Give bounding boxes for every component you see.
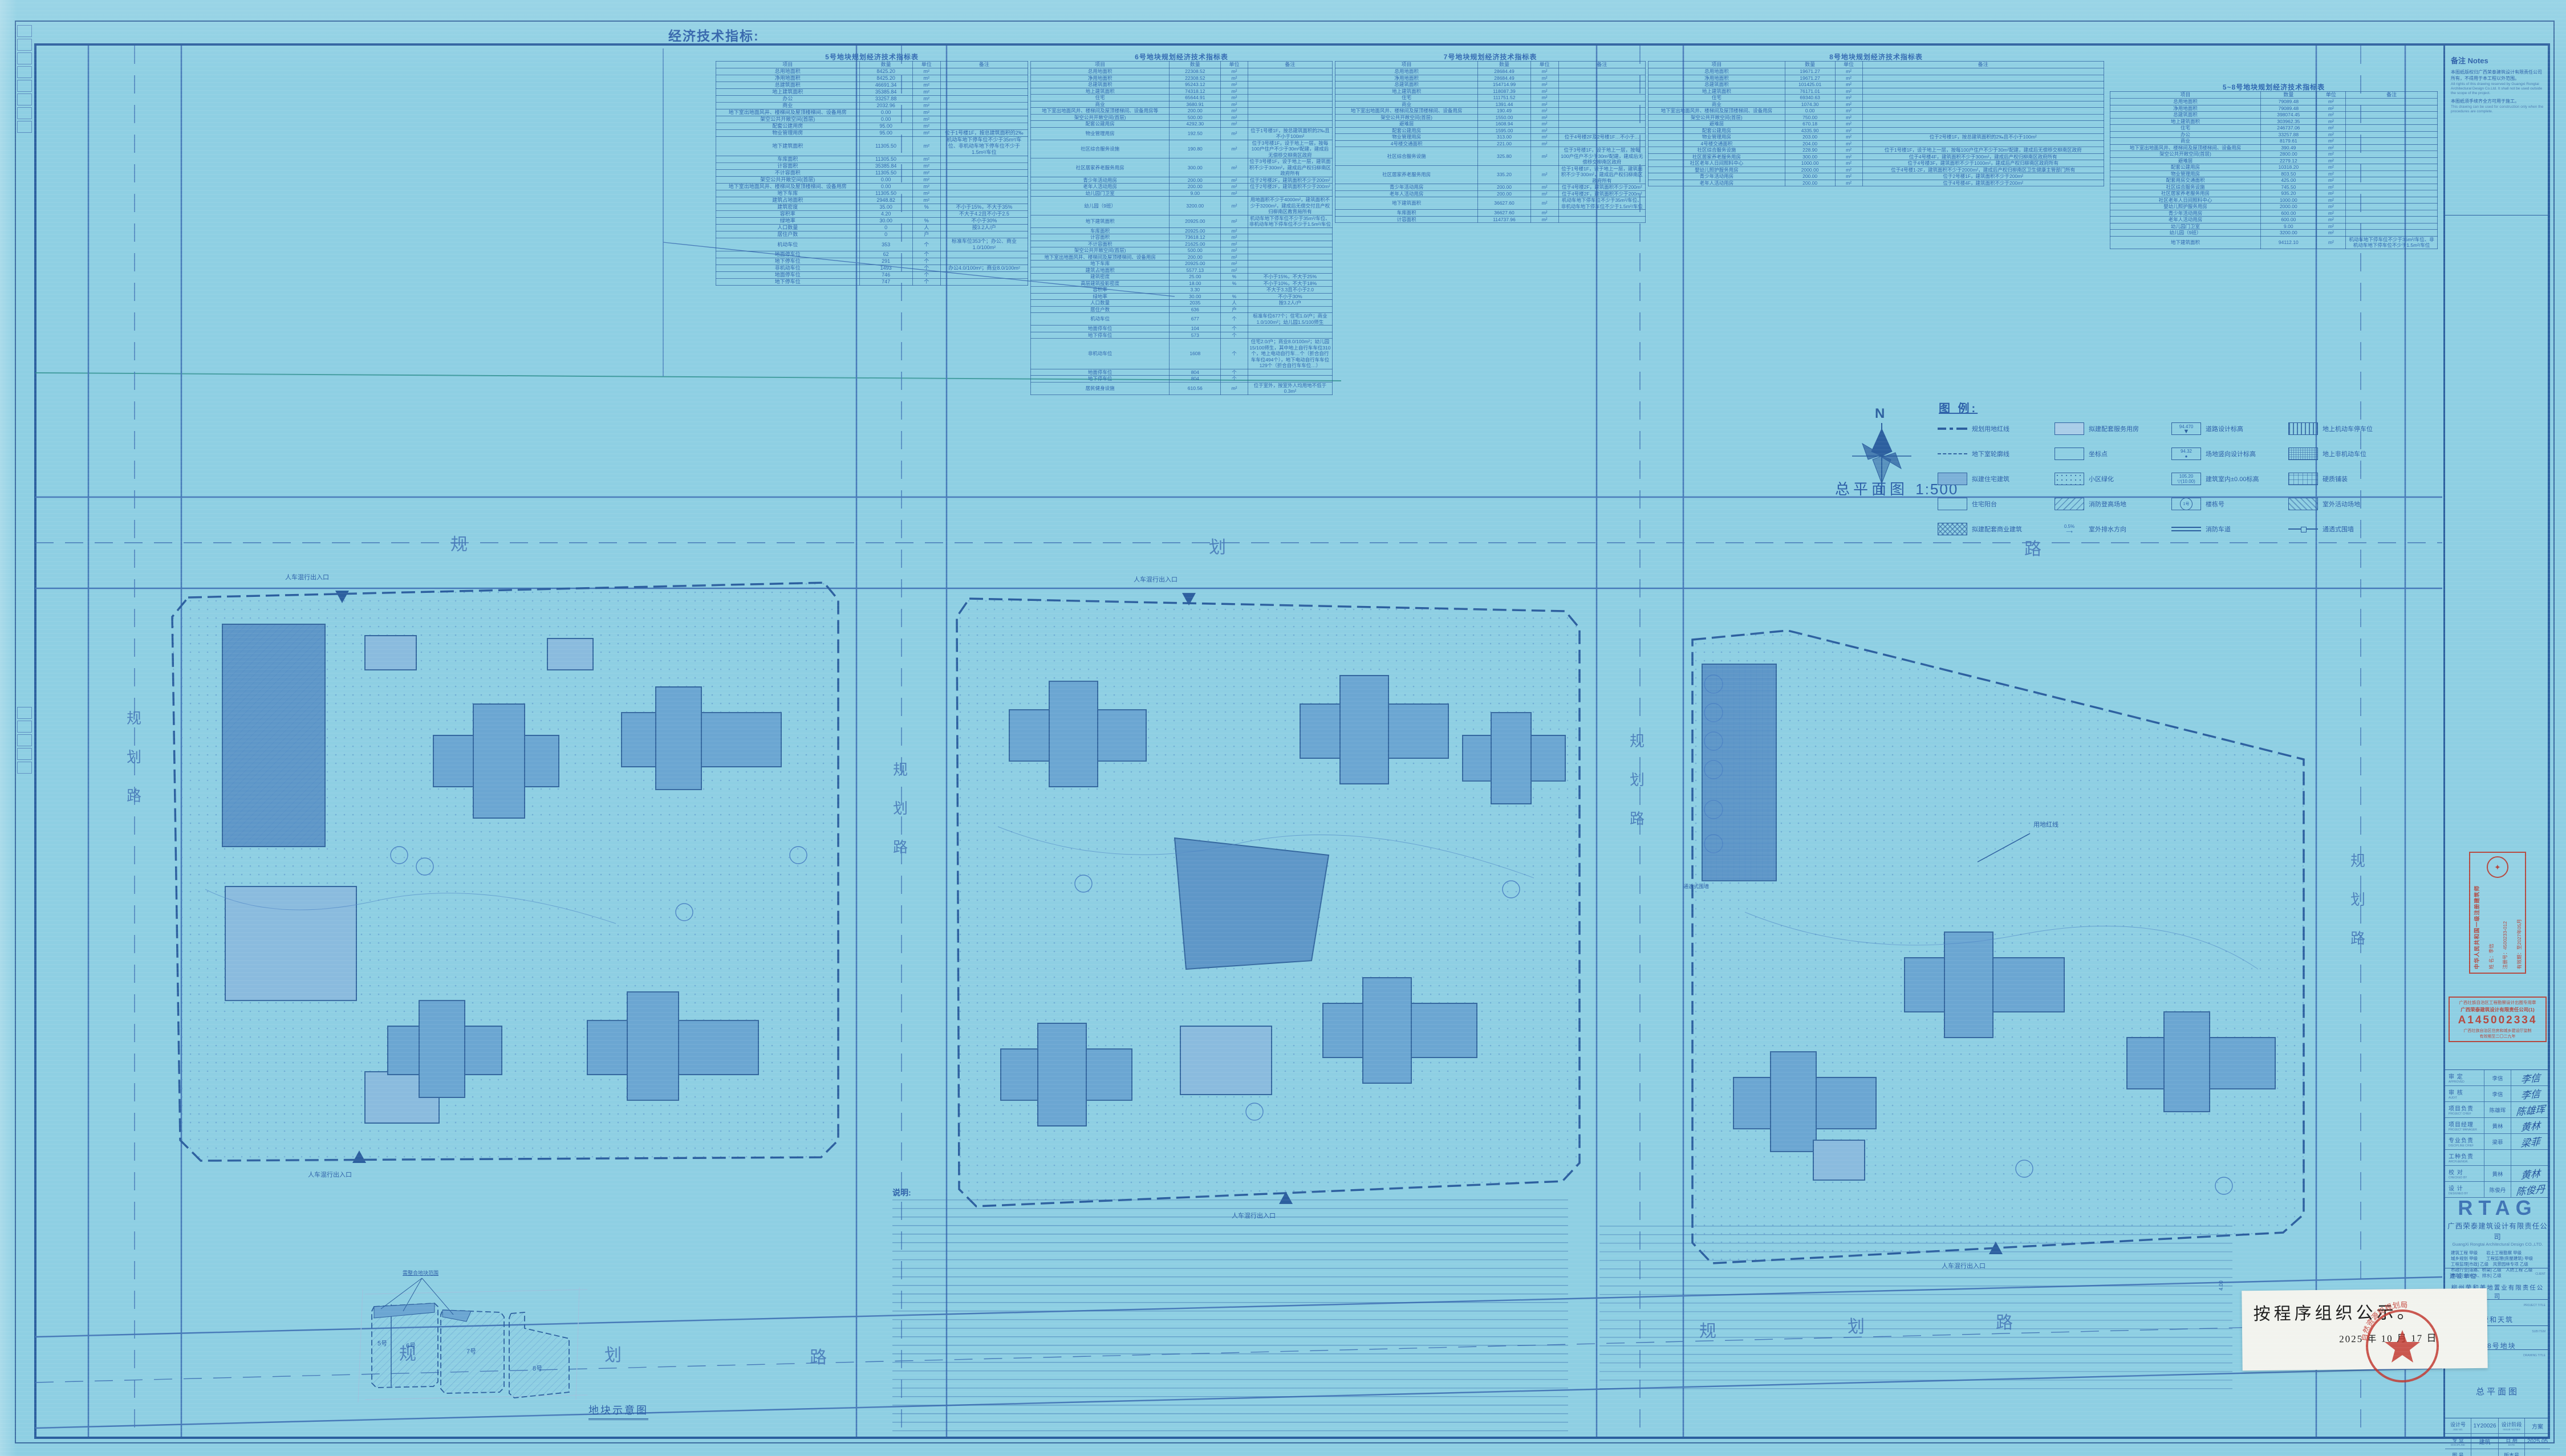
table-row: 地下建筑面积36627.60m²机动车地下停车位不少于35m²/车位、非机动车地… bbox=[1335, 197, 1646, 210]
table-row: 地下建筑面积11305.50m²机动车地下停车位不少于35m²/车位、非机动车地… bbox=[716, 137, 1028, 156]
table-row: 净用地面积79089.48m² bbox=[2110, 105, 2438, 112]
table-row: 架空公共开敞空间(首层)750.00m² bbox=[1649, 114, 2104, 121]
signature-row: 工种负责ARCH.&ENGR. bbox=[2445, 1150, 2550, 1166]
table-header: 备注 bbox=[940, 62, 1028, 68]
note-1-cn: 本图纸版权归广西荣泰建筑设计有限责任公司所有，不得用于本工程以外范围。 bbox=[2451, 69, 2544, 82]
table-header: 项目 bbox=[1649, 62, 1785, 68]
table-row: 地下建筑面积94112.10m²机动车地下停车位不少于35m²/车位、非机动车地… bbox=[2110, 236, 2438, 249]
legend-item: 地下室轮廓线 bbox=[1938, 442, 2055, 465]
fence-icon bbox=[2288, 528, 2318, 530]
table-row: 车库面积11305.50m² bbox=[716, 156, 1028, 163]
legend-item: 规划用地红线 bbox=[1938, 417, 2055, 440]
schematic-plot5-label: 5号 bbox=[377, 1339, 387, 1348]
table-header: 单位 bbox=[1530, 62, 1558, 68]
table-row: 机动车位353个标准车位353个；办公、商业1.0/100m² bbox=[716, 238, 1028, 251]
signature-row: 项目经理PROJECT MANAGER 黄林 黄林 bbox=[2445, 1118, 2550, 1134]
table-row: 架空公共开敞空间(首层)500.00m² bbox=[1031, 247, 1333, 254]
table-row: 办公33257.88m² bbox=[2110, 131, 2438, 138]
company-name-cn: 广西荣泰建筑设计有限责任公司 bbox=[2445, 1220, 2550, 1242]
seal-number: A145002334 bbox=[2451, 1014, 2544, 1027]
table-row: 架空公共开敞空间(首层)0.00m² bbox=[716, 116, 1028, 123]
legend-item: 1号楼栋号 bbox=[2171, 493, 2288, 515]
schematic-plot8-label: 8号 bbox=[533, 1364, 542, 1373]
road-label-top-3: 路 bbox=[2024, 535, 2041, 560]
signature-row: 专业负责DISCIPLINE CHIEF 梁菲 梁菲 bbox=[2445, 1134, 2550, 1150]
legend-item: 94.32●场地竖向设计标高 bbox=[2171, 442, 2288, 465]
seal-line2: 广西荣泰建筑设计有限责任公司(1) bbox=[2451, 1006, 2544, 1013]
coord-icon bbox=[2055, 448, 2084, 460]
table-header: 备注 bbox=[1558, 62, 1645, 68]
table-row: 高层建筑投影密度18.00%不小于10%，不大于18% bbox=[1031, 280, 1333, 287]
table-row: 绿地率30.00%不小于30% bbox=[716, 218, 1028, 225]
table-row: 地上建筑面积35385.84m² bbox=[716, 89, 1028, 96]
arch-stamp-emblem: ✦ bbox=[2487, 856, 2508, 878]
signer-name: 黄林 bbox=[2484, 1166, 2511, 1181]
signature-table: 审 定APPROVED 李信 李信审 核AUDIT 李信 李信项目负责PROJE… bbox=[2445, 1069, 2550, 1198]
legend-item: 地上非机动车位 bbox=[2288, 442, 2405, 465]
table-row: 老年人活动用房200.00m²位于4号楼2F，建筑面积不少于200m² bbox=[1335, 190, 1646, 197]
table-row: 青少年活动用房600.00m² bbox=[2110, 210, 2438, 217]
table-title: 6号地块规划经济技术指标表 bbox=[1030, 54, 1333, 61]
table-row: 容积率4.20不大于4.2且不小于2.5 bbox=[716, 211, 1028, 218]
table-row: 居住户数636户 bbox=[1031, 306, 1333, 313]
table-row: 非机动车位1493个办公4.0/100m²；商业8.0/100m² bbox=[716, 265, 1028, 272]
table-row: 地下停车位291个 bbox=[716, 258, 1028, 265]
table-row: 地下车库20925.00m² bbox=[1031, 261, 1333, 267]
table-row: 总用地面积19671.27m² bbox=[1649, 68, 2104, 75]
table-row: 避难层1608.94m² bbox=[1335, 121, 1646, 128]
legend-item: 105.20▽(10.00)建筑室内±0.00标高 bbox=[2171, 467, 2288, 490]
legend-label: 室外排水方向 bbox=[2089, 524, 2126, 534]
parking-icon bbox=[2288, 422, 2318, 435]
table-row: 架空公共开敞空间(首层)500.00m² bbox=[1031, 114, 1333, 121]
legend-item: 地上机动车停车位 bbox=[2288, 417, 2405, 440]
notes-heading: 说明: bbox=[892, 1187, 911, 1198]
table-row: 不计容面积21625.00m² bbox=[1031, 241, 1333, 247]
table-row: 架空公共开敞空间(首层)2800.00m² bbox=[2110, 151, 2438, 158]
table-row: 架空公共开敞空间(首层)0.00m² bbox=[716, 177, 1028, 184]
redline-icon bbox=[1938, 428, 1967, 430]
table-row: 物业管理用房203.00m²位于2号楼1F，按总建筑面积的2‰且不小于100m² bbox=[1649, 134, 2104, 141]
legend-item: 消防登高场地 bbox=[2055, 493, 2171, 515]
legend-item: 消防车道 bbox=[2171, 518, 2288, 540]
table-row: 4号楼交通面积204.00m² bbox=[1649, 140, 2104, 147]
legend-label: 室外活动场地 bbox=[2323, 499, 2360, 509]
table-header: 单位 bbox=[1221, 62, 1248, 68]
resid-icon bbox=[1938, 473, 1967, 485]
legend-label: 建筑室内±0.00标高 bbox=[2206, 474, 2259, 483]
table-row: 计容面积114737.96m² bbox=[1335, 216, 1646, 223]
seal-line1: 广西壮族自治区工程勘察设计出图专用章 bbox=[2451, 999, 2544, 1006]
table-row: 老年人活动用房200.00m²位于4号楼4F，建筑面积不少于200m² bbox=[1649, 180, 2104, 186]
table-header: 数量 bbox=[1785, 62, 1835, 68]
arch-stamp-name: 李信 bbox=[2488, 943, 2494, 953]
table-row: 地下室出地面风井、楼梯间及屋顶楼梯间、设备用房390.49m² bbox=[2110, 144, 2438, 151]
legend-label: 地下室轮廓线 bbox=[1972, 449, 2009, 458]
table-header: 备注 bbox=[1862, 62, 2104, 68]
legend-item: 拟建住宅建筑 bbox=[1938, 467, 2055, 490]
table-header: 项目 bbox=[1031, 62, 1170, 68]
schematic-title: 地块示意图 bbox=[588, 1402, 648, 1420]
table-header: 项目 bbox=[2110, 92, 2261, 99]
legend-label: 坐标点 bbox=[2089, 449, 2108, 458]
company-block: RTAG 广西荣泰建筑设计有限责任公司 GuangXi Rongtai Arch… bbox=[2445, 1196, 2550, 1279]
table-row: 非机动车位1608个住宅2.0/户；商业8.0/100m²；幼儿园15/100师… bbox=[1031, 339, 1333, 369]
legend-label: 拟建配套服务用房 bbox=[2089, 424, 2139, 433]
table-row: 总建筑面积154714.99m² bbox=[1335, 82, 1646, 88]
north-letter: N bbox=[1875, 406, 1885, 422]
econ-table-plot8: 8号地块规划经济技术指标表项目数量单位备注总用地面积19671.27m²净用地面… bbox=[1648, 54, 2104, 186]
table-row: 建筑密度35.00%不小于15%，不大于35% bbox=[716, 204, 1028, 211]
signer-name: 陈雄珲 bbox=[2484, 1102, 2511, 1117]
table-row: 商业1074.30m² bbox=[1649, 101, 2104, 108]
signer-name: 陈俊丹 bbox=[2484, 1182, 2511, 1197]
table-row: 居住户数0户 bbox=[716, 231, 1028, 238]
plot-8-boundary bbox=[1692, 631, 2304, 1263]
legend-item: 小区绿化 bbox=[2055, 467, 2171, 490]
arch-stamp-title: 中华人民共和国一级注册建筑师 bbox=[2472, 881, 2480, 969]
legend-label: 楼栋号 bbox=[2206, 499, 2224, 509]
signer-name: 李信 bbox=[2484, 1086, 2511, 1101]
econ-table-plot5: 5号地块规划经济技术指标表项目数量单位备注总用地面积8425.20m²净用地面积… bbox=[716, 54, 1028, 286]
table-header: 数量 bbox=[1478, 62, 1530, 68]
signature-row: 审 核AUDIT 李信 李信 bbox=[2445, 1086, 2550, 1102]
seal-line5: 有效期至二〇二九年 bbox=[2451, 1034, 2544, 1039]
table-header: 单位 bbox=[2316, 92, 2346, 99]
entrance-label-5: 人车混行出入口 bbox=[1134, 575, 1178, 584]
table-row: 居民健身设施610.56m²位于室外，按室外人均用地不低于0.3m² bbox=[1031, 382, 1333, 394]
drawing-sheet: 经济技术指标: 5号地块规划经济技术指标表项目数量单位备注总用地面积8425.2… bbox=[0, 0, 2566, 1456]
legend-item: 住宅阳台 bbox=[1938, 493, 2055, 515]
table-row: 人口数量2035人按3.2人/户 bbox=[1031, 300, 1333, 307]
table-row: 总建筑面积95243.12m² bbox=[1031, 82, 1333, 88]
balcony-icon bbox=[1938, 498, 1967, 510]
table-row: 净用地面积19671.27m² bbox=[1649, 75, 2104, 82]
entrance-label-2: 人车混行出入口 bbox=[308, 1170, 352, 1179]
company-name-en: GuangXi Rongtai Architectural Design CO.… bbox=[2445, 1242, 2550, 1247]
table-header: 单位 bbox=[912, 62, 940, 68]
seal-line4: 广西壮族自治区住房和城乡建设厅监制 bbox=[2451, 1028, 2544, 1034]
ver-no bbox=[2525, 1449, 2550, 1456]
legend-item: 室外活动场地 bbox=[2288, 493, 2405, 515]
signer-name bbox=[2484, 1150, 2511, 1165]
table-row: 地上建筑面积74318.12m² bbox=[1031, 88, 1333, 95]
table-row: 车库面积36627.60m² bbox=[1335, 210, 1646, 217]
siteelev-icon: 94.32● bbox=[2171, 448, 2201, 460]
schematic-plot6-label: 6号 bbox=[406, 1341, 416, 1350]
table-row: 绿地率30.00%不小于30% bbox=[1031, 293, 1333, 300]
table-row: 老年人活动用房600.00m² bbox=[2110, 217, 2438, 223]
road-label-top-2: 划 bbox=[1209, 533, 1226, 558]
note-2-en: This drawing can be used for constructio… bbox=[2451, 105, 2544, 114]
legend-label: 住宅阳台 bbox=[1972, 499, 1997, 509]
road-label-mid2: 规 划 路 bbox=[1630, 730, 1645, 828]
table-row: 地面停车位804个 bbox=[1031, 369, 1333, 376]
legend-label: 地上非机动车位 bbox=[2323, 449, 2366, 458]
legend-item: 94.470▼道路设计标高 bbox=[2171, 417, 2288, 440]
table-row: 社区居家养老服务用房935.20m² bbox=[2110, 190, 2438, 197]
legend-item: 0.5%⟶室外排水方向 bbox=[2055, 518, 2171, 540]
roadelev-icon: 94.470▼ bbox=[2171, 422, 2201, 435]
legend-label: 地上机动车停车位 bbox=[2323, 424, 2373, 433]
legend-label: 拟建配套商业建筑 bbox=[1972, 524, 2022, 534]
table-row: 社区综合服务设施190.80m²位于3号楼1F，设于地上一层，按每100户住户不… bbox=[1031, 140, 1333, 158]
table-row: 幼儿园（9班）3200.00m² bbox=[2110, 230, 2438, 237]
table-row: 老年人活动用房200.00m²位于2号楼2F，建筑面积不少于200m² bbox=[1031, 184, 1333, 190]
table-row: 商业8179.61m² bbox=[2110, 138, 2438, 145]
table-row: 地下室出地面风井、楼梯间及屋顶楼梯间、设备用房0.00m² bbox=[716, 184, 1028, 190]
note-1-en: All rights of this drawing reserved by G… bbox=[2451, 82, 2544, 96]
table-row: 地面停车位62个 bbox=[716, 251, 1028, 258]
table-row: 住宅246737.06m² bbox=[2110, 125, 2438, 132]
table-row: 不计容面积11305.50m² bbox=[716, 170, 1028, 177]
drawing-name: 总平面图 bbox=[2450, 1385, 2545, 1397]
table-row: 地下室出地面风井、楼梯间及屋顶楼梯间、设备用房190.49m² bbox=[1335, 108, 1646, 115]
table-row: 容积率3.30不大于3.3且不小于2.0 bbox=[1031, 287, 1333, 294]
table-row: 地上建筑面积303962.35m² bbox=[2110, 118, 2438, 125]
notes-title: 备注 Notes bbox=[2451, 55, 2544, 66]
legend-label: 消防车道 bbox=[2206, 524, 2231, 534]
table-row: 计容面积73618.12m² bbox=[1031, 234, 1333, 241]
legend-label: 硬质铺装 bbox=[2323, 474, 2348, 483]
table-row: 计容面积35385.84m² bbox=[716, 163, 1028, 170]
plan-title-text: 总平面图 bbox=[1835, 481, 1908, 498]
note-2-cn: 本图纸须手续齐全方可用于施工。 bbox=[2451, 98, 2544, 104]
table-row: 机动车位677个标准车位677个；住宅1.0/户；商业1.0/100m²；幼儿园… bbox=[1031, 313, 1333, 326]
legend-item: 硬质铺装 bbox=[2288, 467, 2405, 490]
table-row: 物业管理用房95.00m²位于1号楼1F，按总建筑面积的2‰ bbox=[716, 130, 1028, 137]
qualification-line: 城乡规划 甲级 工程监理(房屋建筑) 甲级 bbox=[2451, 1256, 2544, 1262]
table-row: 幼儿园门卫室9.00m² bbox=[1031, 190, 1333, 197]
bldgno-icon: 1号 bbox=[2171, 498, 2201, 510]
table-row: 4号楼交通面积221.00m² bbox=[1335, 140, 1646, 147]
title-block: 备注 Notes 本图纸版权归广西荣泰建筑设计有限责任公司所有，不得用于本工程以… bbox=[2443, 43, 2550, 1439]
table-row: 婴幼儿照护服务用房2000.00m²位于4号楼1-2F，建筑面积不少于2000m… bbox=[1649, 166, 2104, 173]
signer-name: 李信 bbox=[2484, 1070, 2511, 1085]
table-row: 车库面积20925.00m² bbox=[1031, 227, 1333, 234]
signature-row: 审 定APPROVED 李信 李信 bbox=[2445, 1070, 2550, 1086]
table-row: 配套公建用房4292.30m² bbox=[1031, 121, 1333, 128]
road-label-bottom-3: 路 bbox=[810, 1343, 827, 1368]
table-header: 单位 bbox=[1835, 62, 1862, 68]
date: 2025.05 bbox=[2525, 1434, 2550, 1449]
table-row: 物业管理用房803.50m² bbox=[2110, 170, 2438, 177]
table-row: 地上建筑面积118087.39m² bbox=[1335, 88, 1646, 95]
signature-row: 设 计DESIGNED BY 陈俊丹 陈俊丹 bbox=[2445, 1182, 2550, 1198]
table-row: 住宅111751.52m² bbox=[1335, 95, 1646, 101]
table-row: 幼儿园门卫室9.00m² bbox=[2110, 223, 2438, 230]
table-row: 青少年活动用房200.00m²位于2号楼2F，建筑面积不少于200m² bbox=[1031, 177, 1333, 184]
table-row: 住宅65644.91m² bbox=[1031, 95, 1333, 101]
table-row: 社区综合服务设施228.90m²位于1号楼1F，设于地上一层，按每100户住户不… bbox=[1649, 147, 2104, 154]
road-label-top-1: 规 bbox=[450, 530, 468, 555]
table-row: 物业管理用房192.50m²位于1号楼1F，按总建筑面积的2‰且不小于100m² bbox=[1031, 127, 1333, 140]
company-logo: RTAG bbox=[2445, 1196, 2550, 1220]
schematic-callout: 需整合地块范围 bbox=[403, 1269, 439, 1276]
fire-icon bbox=[2055, 498, 2084, 510]
table-title: 7号地块规划经济技术指标表 bbox=[1335, 54, 1646, 61]
table-row: 幼儿园（9班）3200.00m²用地面积不少于4000m²，建筑面积不少于320… bbox=[1031, 197, 1333, 215]
titleblock-notes: 备注 Notes 本图纸版权归广西荣泰建筑设计有限责任公司所有，不得用于本工程以… bbox=[2445, 50, 2550, 215]
table-row: 地下室出地面风井、楼梯间及屋顶楼梯间、设备用房200.00m² bbox=[1031, 254, 1333, 261]
table-row: 社区老年人日间照料中心1000.00m²位于4号楼3F，建筑面积不少于1000m… bbox=[1649, 160, 2104, 167]
table-row: 地下室出地面风井、楼梯间及屋顶楼梯间、设备用房0.00m² bbox=[1649, 108, 2104, 115]
table-row: 建筑占地面积5577.13m² bbox=[1031, 267, 1333, 274]
job-rows: 设计号JOB NO. 1Y20026 设计阶段ISSUE NOTES 方案 专 … bbox=[2445, 1418, 2550, 1456]
table-row: 配套公建用房4335.90m² bbox=[1649, 127, 2104, 134]
table-row: 总建筑面积46691.34m² bbox=[716, 82, 1028, 89]
legend-label: 拟建住宅建筑 bbox=[1972, 474, 2009, 483]
table-row: 婴幼儿照护服务用房2000.00m² bbox=[2110, 204, 2438, 210]
table-row: 总用地面积28684.49m² bbox=[1335, 68, 1646, 75]
green-icon bbox=[2055, 473, 2084, 485]
bldgelev-icon: 105.20▽(10.00) bbox=[2171, 473, 2201, 485]
table-row: 避难层670.18m² bbox=[1649, 121, 2104, 128]
bike-icon bbox=[2288, 448, 2318, 460]
table-row: 架空公共开敞空间(首层)1550.00m² bbox=[1335, 114, 1646, 121]
table-row: 物业管理用房313.00m²位于4号楼2F及2号楼1F…不小于… bbox=[1335, 134, 1646, 141]
table-row: 地下室出地面风井、楼梯间及屋顶楼梯间、设备用房0.00m² bbox=[716, 109, 1028, 116]
discipline: 建筑 bbox=[2471, 1434, 2499, 1449]
arch-stamp-valid: 至2027年05月 bbox=[2516, 919, 2522, 950]
dwg-no bbox=[2471, 1449, 2499, 1456]
arch-stamp-reg: 4500233-012 bbox=[2502, 921, 2508, 950]
table-row: 避难层2279.12m² bbox=[2110, 157, 2438, 164]
table-row: 地下建筑面积20925.00m²机动车地下停车位不少于35m²/车位、非机动车地… bbox=[1031, 215, 1333, 227]
plot-schematic bbox=[358, 1278, 587, 1402]
table-title: 5号地块规划经济技术指标表 bbox=[716, 54, 1028, 61]
service-icon bbox=[2055, 422, 2084, 435]
table-row: 人口数量0人按3.2人/户 bbox=[716, 225, 1028, 231]
architect-stamp: 中华人民共和国一级注册建筑师 姓 名：李信 注册号：4500233-012 有效… bbox=[2469, 852, 2526, 974]
econ-table-plot6: 6号地块规划经济技术指标表项目数量单位备注总用地面积22308.52m²净用地面… bbox=[1030, 54, 1333, 395]
planning-bureau-seal: 自然资源和规划局 bbox=[2354, 1298, 2451, 1394]
table-row: 地下车库11305.50m² bbox=[716, 190, 1028, 197]
econ-indicator-label: 经济技术指标: bbox=[668, 25, 760, 44]
table-row: 总建筑面积398074.45m² bbox=[2110, 112, 2438, 119]
table-row: 配套公建用房10318.20m² bbox=[2110, 164, 2438, 171]
table-row: 地面停车位746个 bbox=[716, 272, 1028, 279]
table-row: 建筑密度25.00%不小于15%，不大于25% bbox=[1031, 274, 1333, 280]
signature-row: 校 对CHECKED BY 黄林 黄林 bbox=[2445, 1166, 2550, 1182]
legend-label: 消防登高场地 bbox=[2089, 499, 2126, 509]
fence-label: 通透式围墙 bbox=[1683, 882, 1709, 890]
design-seal-box: 广西壮族自治区工程勘察设计出图专用章 广西荣泰建筑设计有限责任公司(1) A14… bbox=[2449, 997, 2547, 1042]
road-label-left: 规 划 路 bbox=[127, 707, 141, 806]
table-row: 地下停车位573个 bbox=[1031, 332, 1333, 339]
entrance-label-1: 人车混行出入口 bbox=[285, 572, 329, 581]
table-row: 社区居家养老服务用房300.00m²位于4号楼4F，建筑面积不少于300m²，建… bbox=[1649, 153, 2104, 160]
table-row: 社区居家养老服务用房300.00m²位于3号楼1F，设于地上一层，建筑面积不少于… bbox=[1031, 158, 1333, 177]
table-row: 社区综合服务设施745.50m² bbox=[2110, 184, 2438, 190]
table-row: 净用地面积8425.20m² bbox=[716, 75, 1028, 82]
activity-icon bbox=[2288, 498, 2318, 510]
table-row: 总用地面积8425.20m² bbox=[716, 68, 1028, 75]
signature-row: 项目负责PROJECT CHIEF 陈雄珲 陈雄珲 bbox=[2445, 1102, 2550, 1118]
legend-label: 通透式围墙 bbox=[2323, 524, 2354, 534]
table-row: 青少年活动用房200.00m²位于2号楼1F，建筑面积不少于200m² bbox=[1649, 173, 2104, 180]
table-header: 数量 bbox=[1170, 62, 1221, 68]
table-row: 社区综合服务设施325.80m²位于3号楼1F，设于地上一层，按每100户住户不… bbox=[1335, 147, 1646, 166]
legend: 规划用地红线地下室轮廓线拟建住宅建筑住宅阳台拟建配套商业建筑拟建配套服务用房坐标… bbox=[1938, 416, 2405, 542]
table-row: 总用地面积79089.48m² bbox=[2110, 99, 2438, 105]
legend-label: 道路设计标高 bbox=[2206, 424, 2243, 433]
table-row: 地面停车位104个 bbox=[1031, 326, 1333, 332]
road-label-right: 规 划 路 bbox=[2350, 849, 2365, 948]
road-label-bottom-2: 划 bbox=[604, 1341, 622, 1366]
table-row: 配套公建用房95.00m² bbox=[716, 123, 1028, 130]
table-row: 地上建筑面积76171.01m² bbox=[1649, 88, 2104, 95]
job-no: 1Y20026 bbox=[2471, 1418, 2499, 1433]
qualification-line: 建筑工程 甲级 岩土工程勘察 甲级 bbox=[2451, 1250, 2544, 1256]
basement-icon bbox=[1938, 453, 1967, 454]
firelane-icon bbox=[2171, 527, 2201, 531]
legend-item: 坐标点 bbox=[2055, 442, 2171, 465]
table-row: 净用地面积28684.49m² bbox=[1335, 75, 1646, 82]
econ-table-plot7: 7号地块规划经济技术指标表项目数量单位备注总用地面积28684.49m²净用地面… bbox=[1335, 54, 1646, 223]
commercial-icon bbox=[1938, 523, 1967, 535]
table-header: 项目 bbox=[716, 62, 860, 68]
table-row: 青少年活动用房200.00m²位于4号楼2F，建筑面积不少于200m² bbox=[1335, 184, 1646, 191]
notes-text-block-1 bbox=[892, 1199, 1568, 1432]
table-header: 数量 bbox=[2261, 92, 2317, 99]
table-row: 建筑占地面积2948.82m² bbox=[716, 197, 1028, 204]
table-row: 配套公建用房1595.00m² bbox=[1335, 127, 1646, 134]
table-row: 办公33257.88m² bbox=[716, 96, 1028, 103]
qualification-line: 工程监理[市政] 乙级 风景园林专项 乙级 bbox=[2451, 1262, 2544, 1267]
table-row: 总建筑面积101425.01m² bbox=[1649, 82, 2104, 88]
table-title: 8号地块规划经济技术指标表 bbox=[1648, 54, 2104, 61]
table-header: 数量 bbox=[859, 62, 912, 68]
signer-name: 黄林 bbox=[2484, 1118, 2511, 1133]
legend-item: 通透式围墙 bbox=[2288, 518, 2405, 540]
table-header: 项目 bbox=[1335, 62, 1478, 68]
legend-label: 场地竖向设计标高 bbox=[2206, 449, 2256, 458]
notes-text-block-2 bbox=[1599, 1226, 2232, 1390]
legend-label: 规划用地红线 bbox=[1972, 424, 2009, 433]
table-row: 社区老年人日间照料中心1000.00m² bbox=[2110, 197, 2438, 204]
schematic-plot7-label: 7号 bbox=[466, 1347, 476, 1356]
legend-label: 小区绿化 bbox=[2089, 474, 2114, 483]
drain-icon: 0.5%⟶ bbox=[2055, 522, 2084, 536]
legend-item: 拟建配套服务用房 bbox=[2055, 417, 2171, 440]
paving-icon bbox=[2288, 473, 2318, 485]
table-header: 备注 bbox=[2346, 92, 2438, 99]
signer-name: 梁菲 bbox=[2484, 1134, 2511, 1149]
table-row: 地下停车位747个 bbox=[716, 279, 1028, 286]
table-row: 总用地面积22308.52m² bbox=[1031, 68, 1333, 75]
table-row: 商业3680.91m² bbox=[1031, 101, 1333, 108]
econ-table-plots5-8: 5~8号地块规划经济技术指标表项目数量单位备注总用地面积79089.48m²净用… bbox=[2110, 84, 2438, 249]
table-title: 5~8号地块规划经济技术指标表 bbox=[2110, 84, 2438, 91]
table-row: 净用地面积22308.52m² bbox=[1031, 75, 1333, 82]
table-row: 社区居家养老服务用房335.20m²位于1号楼1F，设于地上一层，建筑面积不少于… bbox=[1335, 165, 1646, 184]
design-stage: 方案 bbox=[2525, 1418, 2550, 1433]
road-label-mid1: 规 划 路 bbox=[893, 758, 908, 857]
table-row: 配套用房交通面积425.00m² bbox=[2110, 177, 2438, 184]
table-row: 住宅69340.63m² bbox=[1649, 95, 2104, 101]
table-row: 地下室出地面风井、楼梯间及屋顶楼梯间、设备用房等200.00m² bbox=[1031, 108, 1333, 115]
legend-title: 图 例: bbox=[1939, 399, 1978, 416]
table-header: 备注 bbox=[1248, 62, 1332, 68]
table-row: 地下停车位804个 bbox=[1031, 376, 1333, 383]
redline-label: 用地红线 bbox=[2033, 820, 2059, 829]
table-row: 商业1391.44m² bbox=[1335, 101, 1646, 108]
table-row: 商业2032.96m² bbox=[716, 103, 1028, 109]
